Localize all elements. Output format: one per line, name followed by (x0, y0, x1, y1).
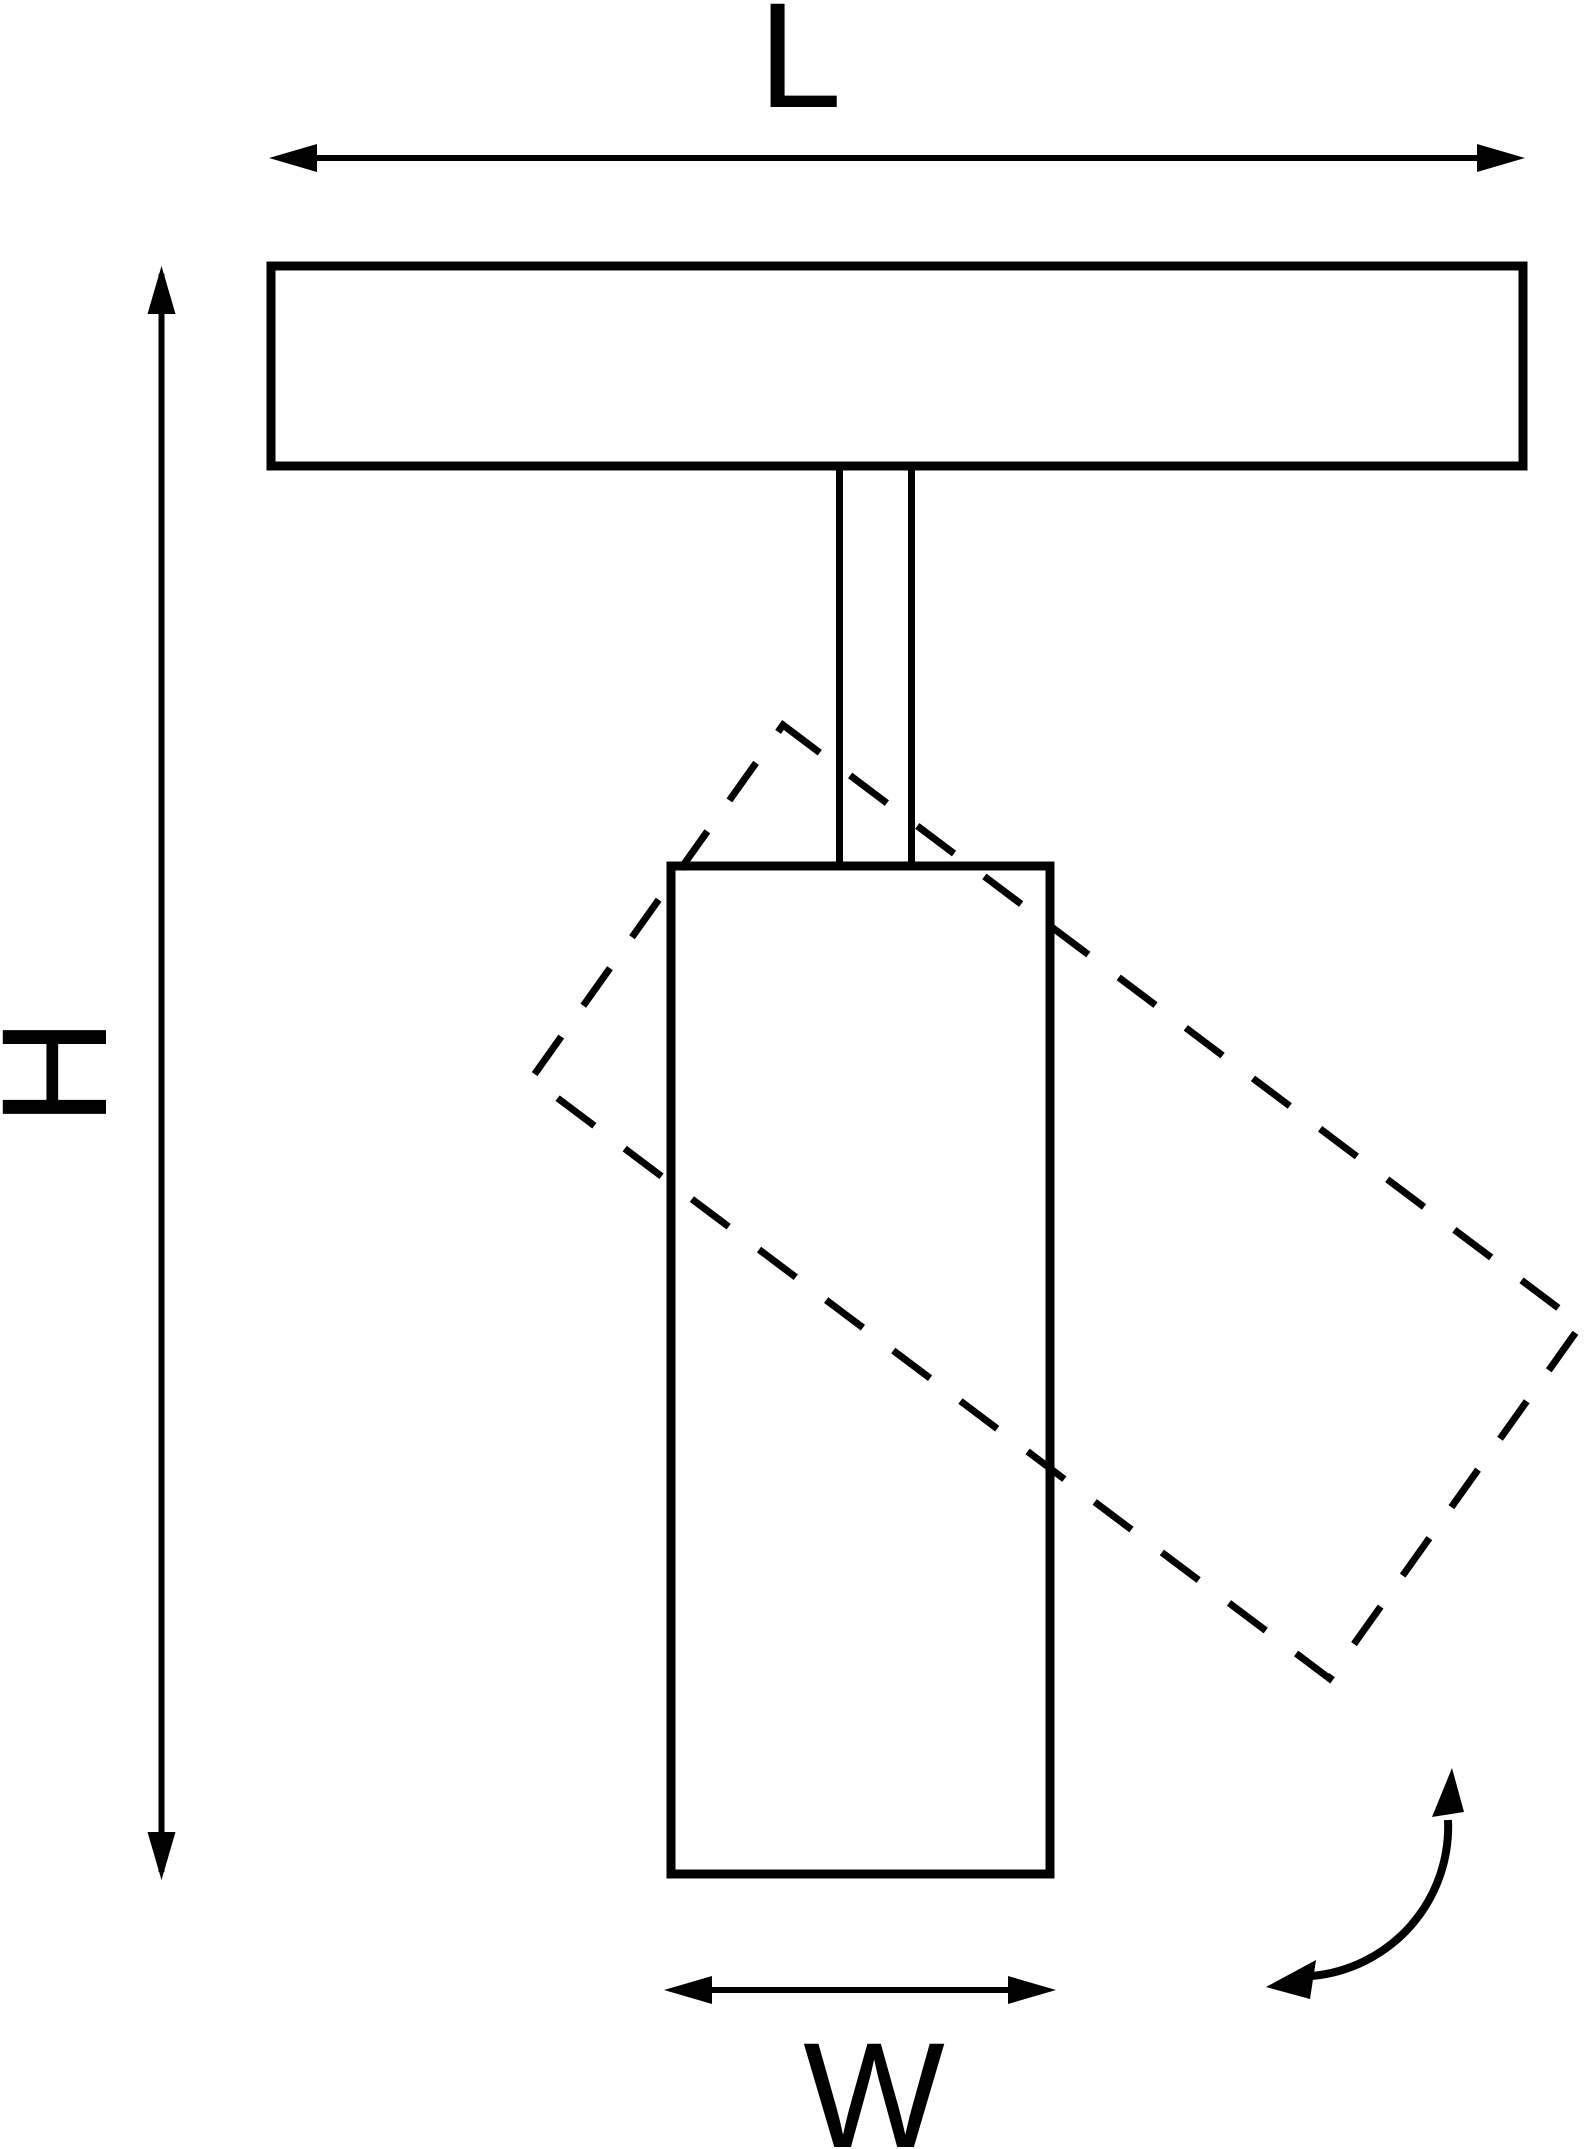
length-arrowhead-right (1477, 144, 1525, 172)
width-arrowhead-right (1008, 1976, 1056, 2004)
track-rail (271, 266, 1523, 466)
height-dimension: H (0, 266, 176, 1880)
spotlight-dimension-diagram: L H W (0, 0, 1586, 2149)
rotation-arc (1312, 1820, 1448, 1976)
lamp-body (671, 866, 1050, 1874)
height-arrowhead-top (148, 266, 176, 314)
length-label: L (758, 0, 841, 139)
length-arrowhead-left (269, 144, 317, 172)
rotation-arrow (1266, 1768, 1464, 1999)
width-label: W (803, 2011, 945, 2149)
height-label: H (0, 1018, 138, 1126)
stem (840, 464, 912, 868)
width-dimension: W (664, 1976, 1056, 2149)
dimension-diagram-page: L H W (0, 0, 1586, 2149)
width-arrowhead-left (664, 1976, 712, 2004)
rotation-arrowhead-top (1432, 1768, 1464, 1817)
height-arrowhead-bottom (148, 1832, 176, 1880)
rotation-arrowhead-left (1266, 1960, 1316, 1999)
length-dimension: L (269, 0, 1525, 172)
